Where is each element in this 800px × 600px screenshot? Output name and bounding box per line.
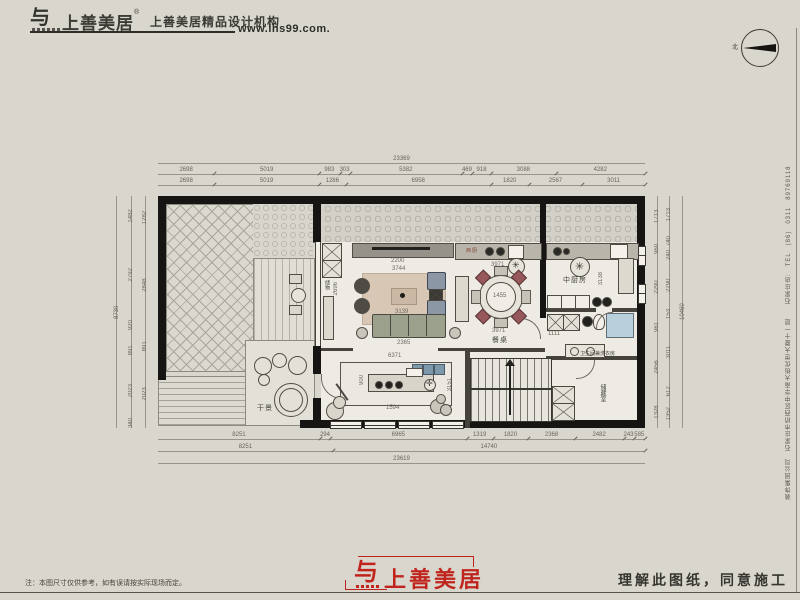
dim-value: 1482 <box>126 196 136 237</box>
dim-value: 2290 <box>652 260 662 315</box>
dim-value: 2792 <box>126 237 136 313</box>
bar-stool <box>375 381 383 389</box>
dim-left-col-a: 148227929208912023340 <box>126 196 136 428</box>
basin <box>582 316 593 327</box>
dim-value: 240 <box>664 250 674 260</box>
dry-landscape-area: 干景 <box>245 340 315 426</box>
kitchen-sink-bowl <box>563 248 570 255</box>
dim-value: 2698 <box>158 178 214 186</box>
dim-value: 1713 <box>664 196 674 233</box>
garden-stone <box>254 357 272 375</box>
compass-needle-icon <box>743 44 776 52</box>
dim-bottom-row-b: 825114740 <box>158 444 645 452</box>
storage-label: 储物 <box>324 280 331 290</box>
footer-logo-subtext-ticks <box>356 585 380 588</box>
dim-value: 2290 <box>664 260 674 310</box>
drawing-sheet: 与 上善美居® 上善美居精品设计机构 www.lhs99.com. 北 装饰集团… <box>0 0 800 600</box>
dim-value: 2368 <box>528 432 574 440</box>
bar-seat-cushion <box>423 364 434 375</box>
dim-right-total: 10460 <box>678 196 688 428</box>
tv-screen <box>372 247 430 250</box>
dim-value: 891 <box>140 332 150 361</box>
bar-height-dim: 3151 <box>447 378 453 391</box>
sheet-note: 注：本图尺寸仅供参考，如有误请按实际现场而定。 <box>25 578 186 588</box>
dim-value: 2567 <box>529 178 583 186</box>
washing-machine <box>563 314 580 331</box>
bar-plant-icon: ✛ <box>424 379 436 391</box>
dim-value: 3011 <box>664 319 674 385</box>
dining-label: 餐桌 <box>492 335 508 345</box>
dim-value: 2023 <box>140 361 150 428</box>
coffee-table-decor <box>400 293 405 298</box>
dim-value: 585 <box>634 432 645 440</box>
dim-value: 1328 <box>652 396 662 428</box>
footer-logo-mark: 与 <box>354 560 378 586</box>
sliding-door-living-deck <box>315 242 321 346</box>
garden-stone <box>258 374 270 386</box>
window <box>330 421 362 429</box>
plant-icon <box>440 404 452 416</box>
sofa-cushion-line <box>390 314 391 336</box>
side-table-round <box>354 298 370 314</box>
dim-top-row-a: 26985019983303538246991830884282 <box>158 167 645 175</box>
terrace-tile-strip <box>313 204 637 243</box>
dim-value: 740 <box>664 233 674 249</box>
sofa-cushion-line <box>408 314 409 336</box>
kitchen-appliance <box>610 244 628 259</box>
approval-statement: 理解此图纸，同意施工 <box>618 570 788 590</box>
kitchen-base-cabinet <box>575 295 590 309</box>
dim-value: 961 <box>652 315 662 338</box>
dining-chair <box>521 290 531 304</box>
wok-stove-icon: ✳ <box>570 257 590 277</box>
washing-machine <box>547 314 564 331</box>
fridge-cabinet <box>618 258 634 294</box>
dining-chair <box>494 318 508 328</box>
dim-value: 153 <box>664 309 674 319</box>
footer-logo-frame-top <box>358 556 474 557</box>
garden-stone <box>279 388 303 412</box>
plant-icon <box>449 327 461 339</box>
dim-value: 918 <box>472 167 491 175</box>
wall-dining-stairhall <box>465 348 545 352</box>
stair-arrow-line <box>509 363 511 415</box>
dim-value: 6965 <box>330 432 467 440</box>
prep-sink <box>508 245 524 259</box>
dim-value: 1286 <box>319 178 346 186</box>
dim-value: 2456 <box>652 338 662 397</box>
entry-storage-cabinet <box>322 243 342 261</box>
bar-window-dim: 1594 <box>386 405 399 411</box>
rug-width-dim: 3744 <box>392 266 405 272</box>
dim-value: 5019 <box>214 178 319 186</box>
wall-top <box>158 196 645 204</box>
dim-right-col-b: 1713740240229015330116121352 <box>664 196 674 428</box>
dim-value: 612 <box>664 385 674 398</box>
armchair <box>427 272 446 290</box>
wall-right <box>637 196 645 428</box>
dim-value: 2698 <box>158 167 214 175</box>
side-table-round <box>354 278 370 294</box>
kitchen-height-dim: 3138 <box>598 272 604 285</box>
wall-living-west-mid <box>313 346 321 374</box>
console-table <box>323 296 334 340</box>
garden-stone <box>272 353 287 368</box>
dim-value: 1352 <box>664 399 674 428</box>
bar-tray <box>406 368 423 377</box>
dim-value: 2023 <box>126 363 136 418</box>
dim-value: 1319 <box>467 432 493 440</box>
side-company-info: 装饰集团公司 石家庄市桥西区中华南大街优世大厦十一层 石家庄店: TEL (86… <box>784 40 793 500</box>
dim-value: 303 <box>340 167 350 175</box>
outdoor-chair <box>289 274 302 284</box>
wall-left <box>158 196 166 380</box>
dim-value: 2848 <box>140 238 150 332</box>
dim-bottom-total: 23619 <box>158 456 645 464</box>
outdoor-chair <box>289 305 302 315</box>
garden-stone <box>288 356 307 375</box>
sink-bowl <box>496 247 505 256</box>
website-url: www.lhs99.com. <box>238 23 330 35</box>
wall-living-west-lower <box>313 398 321 428</box>
dim-value: 920 <box>126 313 136 338</box>
dim-value: 1820 <box>493 432 529 440</box>
window <box>638 284 646 304</box>
dim-value: 5019 <box>214 167 319 175</box>
north-label: 北 <box>732 42 738 51</box>
storeroom-cabinet <box>552 386 575 404</box>
sofa-cushion-line <box>426 314 427 336</box>
logo-glyph: 与 <box>30 7 50 29</box>
bath-laundry-label: 卫生间兼洗衣房 <box>580 350 615 357</box>
dim-left-col-b: 128228488912023 <box>140 196 150 428</box>
dim-top-total: 23369 <box>158 156 645 164</box>
plant-icon <box>436 394 446 404</box>
entry-steps <box>158 376 247 426</box>
dining-table-dia-dim: 1455 <box>493 293 506 299</box>
dim-value: 3011 <box>582 178 645 186</box>
window <box>364 421 396 429</box>
dim-value: 294 <box>320 432 330 440</box>
storeroom-cabinet <box>552 403 575 421</box>
footer-rule <box>0 592 800 593</box>
dim-value: 243 <box>624 432 634 440</box>
stair-landing-divider <box>471 388 551 390</box>
header-rule <box>30 31 235 33</box>
kettle-icon <box>592 297 602 307</box>
footer-logo-frame-left <box>345 580 346 590</box>
bath-width-dim: 1111 <box>548 331 560 337</box>
window <box>432 421 464 429</box>
sink-bowl <box>485 247 494 256</box>
dim-value: 8251 <box>158 444 333 452</box>
main-kitchen-label: 中厨房 <box>563 275 587 285</box>
kitchen-base-cabinet <box>561 295 576 309</box>
dim-bottom-row-a: 825129469651319182023682482243585 <box>158 432 645 440</box>
dim-value: 5382 <box>350 167 462 175</box>
vanity-sink <box>570 347 579 356</box>
tv-cabinet <box>352 243 454 258</box>
armchair-side-table <box>429 289 443 301</box>
dim-value: 960 <box>652 237 662 260</box>
dim-value: 1282 <box>140 196 150 238</box>
sheet-right-rule <box>796 28 797 592</box>
dim-value: 340 <box>126 418 136 428</box>
sideboard <box>455 276 469 322</box>
living-left-dim: 2696 <box>333 282 339 295</box>
wall-living-bar-a <box>321 348 353 351</box>
dry-landscape-label: 干景 <box>257 403 273 413</box>
dining-chair <box>471 290 481 304</box>
window <box>398 421 430 429</box>
compass-icon <box>741 29 779 67</box>
dim-value: 1713 <box>652 196 662 237</box>
bar-stool <box>395 381 403 389</box>
outdoor-table <box>291 288 306 303</box>
sofa-dim: 2365 <box>397 340 410 346</box>
window <box>638 246 646 266</box>
west-kitchen-label: 西厨 <box>466 247 478 254</box>
dim-top-row-b: 2698501912866958182025673011 <box>158 178 645 186</box>
dim-value: 6958 <box>346 178 491 186</box>
store-room-label: 储藏室 <box>598 384 607 402</box>
dim-left-total: 8730 <box>112 196 122 428</box>
dim-right-col-a: 1713960229096124561328 <box>652 196 662 428</box>
sofa <box>372 314 446 338</box>
kitchen-base-cabinet <box>547 295 562 309</box>
dim-value: 4282 <box>556 167 645 175</box>
bar-stool <box>385 381 393 389</box>
bar-seat-cushion <box>434 364 445 375</box>
wall-living-west-upper <box>313 204 321 242</box>
registered-mark: ® <box>134 9 139 16</box>
entry-storage-cabinet <box>322 260 342 278</box>
plant-icon <box>356 327 368 339</box>
footer-logo-text: 上善美居 <box>384 562 484 594</box>
dim-value: 469 <box>462 167 472 175</box>
wall-living-bar-b <box>438 348 470 351</box>
staircase <box>470 358 552 422</box>
courtyard-herringbone-paving <box>166 204 255 372</box>
kettle-icon <box>602 297 612 307</box>
dim-value: 891 <box>126 338 136 362</box>
dim-value: 3088 <box>491 167 555 175</box>
courtyard-pebble-paving <box>253 204 313 258</box>
dim-value: 1820 <box>491 178 529 186</box>
dim-value: 2482 <box>575 432 624 440</box>
bar-width-dim: 6371 <box>388 353 401 359</box>
footer-logo-frame-bottom <box>345 589 387 590</box>
kitchen-sink-bowl <box>553 247 562 256</box>
wall-kitchen-bath-b <box>612 308 637 312</box>
dim-value: 983 <box>319 167 340 175</box>
dining-chair <box>494 266 508 276</box>
tv-wall-dim: 2200 <box>391 258 404 264</box>
wall-dining-kitchen <box>540 204 546 318</box>
dining-width-dim: 3971 <box>492 328 505 334</box>
dim-value: 8251 <box>158 432 320 440</box>
stair-arrow-head <box>505 359 515 366</box>
island-depth-dim: 900 <box>359 375 365 385</box>
dim-value: 14740 <box>333 444 645 452</box>
